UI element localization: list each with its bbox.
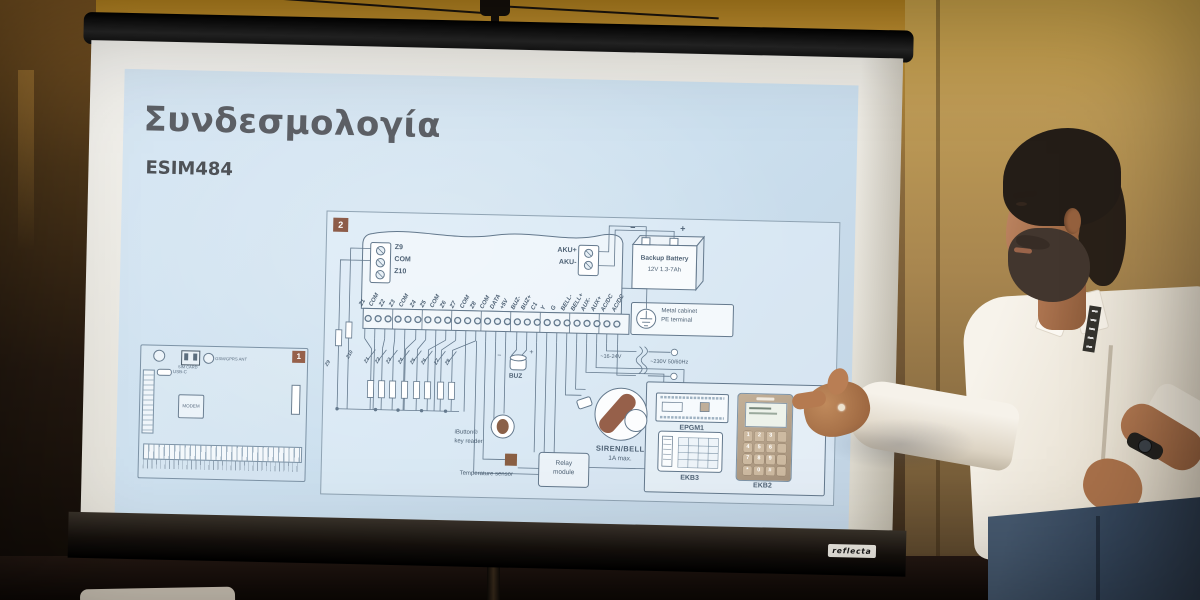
keypad-key bbox=[776, 466, 785, 476]
low-voltage-label: ~16-24V bbox=[600, 354, 621, 360]
ibutton-label-line1: iButton® bbox=[454, 429, 477, 436]
buzzer-minus-sign: − bbox=[497, 352, 501, 359]
mains-voltage-label: ~230V 50/60Hz bbox=[650, 359, 688, 366]
buzzer-label: BUZ bbox=[509, 373, 523, 380]
arm-shadow bbox=[826, 418, 976, 470]
keypad-key bbox=[777, 455, 786, 465]
hanging-wire-right bbox=[497, 5, 719, 19]
wall-highlight bbox=[18, 70, 34, 250]
buzzer-plus-sign: + bbox=[529, 349, 533, 356]
slide-subtitle: ESIM484 bbox=[145, 157, 233, 180]
ekb3-label: EKB3 bbox=[658, 474, 722, 482]
keypad-key: 3 bbox=[766, 431, 775, 441]
antenna-hole-icon bbox=[153, 350, 165, 362]
battery-plus-sign: + bbox=[680, 223, 685, 233]
battery-name: Backup Battery bbox=[632, 254, 696, 262]
conference-room-photo: Συνδεσμολογία ESIM484 1 GSM/GPRS ANT SIM… bbox=[0, 0, 1200, 600]
keypad-key-grid: 1 2 3 4 5 6 7 8 9 * bbox=[743, 431, 787, 476]
jeans-crease bbox=[1096, 516, 1100, 600]
hanging-wire-left bbox=[268, 0, 498, 15]
pe-terminal-line1: Metal cabinet bbox=[661, 308, 697, 315]
slide-title: Συνδεσμολογία bbox=[143, 99, 441, 146]
keypad-lcd-screen bbox=[745, 402, 788, 428]
finger-ring bbox=[838, 404, 845, 411]
slide: Συνδεσμολογία ESIM484 1 GSM/GPRS ANT SIM… bbox=[115, 69, 859, 530]
ekb2-keypad: 1 2 3 4 5 6 7 8 9 * bbox=[736, 393, 794, 482]
keypad-key: 0 bbox=[754, 466, 763, 476]
keypad-key: 5 bbox=[754, 443, 763, 453]
pe-terminal-line2: PE terminal bbox=[661, 317, 692, 324]
pcb-left-terminal-strip bbox=[141, 369, 154, 433]
io-terminal-com: COM bbox=[394, 256, 410, 263]
keypad-key: 9 bbox=[765, 454, 774, 464]
projector-screen: Συνδεσμολογία ESIM484 1 GSM/GPRS ANT SIM… bbox=[75, 12, 910, 597]
diagram-step-badge: 2 bbox=[333, 218, 348, 232]
wiring-diagram: 2 Z9 COM Z10 AKU+ AKU- − + Backup Batter… bbox=[320, 210, 840, 506]
pcb-usb-label: USB-C bbox=[173, 369, 187, 374]
keypad-key: 7 bbox=[743, 454, 752, 464]
keypad-key: 8 bbox=[754, 454, 763, 464]
antenna-connector-icon bbox=[203, 353, 214, 364]
keypad-key bbox=[777, 432, 786, 442]
io-terminal-z10: Z10 bbox=[394, 268, 406, 275]
pcb-drawing: 1 GSM/GPRS ANT SIM CARD USB-C MODEM bbox=[137, 344, 308, 482]
aku-plus-label: AKU+ bbox=[549, 247, 577, 255]
battery-minus-sign: − bbox=[630, 222, 635, 232]
screen-brand-label: reflecta bbox=[828, 544, 876, 558]
keypad-key: * bbox=[743, 465, 752, 475]
temperature-sensor-label: Temperature sensor bbox=[460, 471, 513, 478]
pcb-antenna-label: GSM/GPRS ANT bbox=[215, 356, 247, 362]
io-terminal-z9: Z9 bbox=[395, 244, 403, 251]
ibutton-label-line2: key reader bbox=[454, 438, 482, 445]
ekb2-label: EKB2 bbox=[735, 482, 789, 490]
keypad-key: 4 bbox=[743, 442, 752, 452]
pcb-step-badge: 1 bbox=[292, 351, 305, 363]
keypad-key: # bbox=[765, 466, 774, 476]
aku-minus-label: AKU- bbox=[548, 259, 576, 267]
keypad-key: 1 bbox=[743, 431, 752, 441]
keypad-key: 6 bbox=[766, 443, 775, 453]
siren-bell-label: SIREN/BELL bbox=[578, 443, 662, 454]
usb-c-port-icon bbox=[157, 369, 172, 376]
keypad-key bbox=[777, 443, 786, 453]
modem-chip: MODEM bbox=[178, 394, 205, 419]
watch-face bbox=[1138, 439, 1152, 453]
pcb-fuse-holder bbox=[291, 385, 301, 415]
keypad-key: 2 bbox=[755, 431, 764, 441]
presenter-ear bbox=[1064, 208, 1081, 234]
relay-module-line2: module bbox=[539, 468, 589, 476]
wall-seam bbox=[936, 0, 940, 600]
projection-surface: Συνδεσμολογία ESIM484 1 GSM/GPRS ANT SIM… bbox=[81, 40, 904, 536]
presenter-eye bbox=[1016, 202, 1027, 206]
table-object bbox=[80, 587, 235, 600]
